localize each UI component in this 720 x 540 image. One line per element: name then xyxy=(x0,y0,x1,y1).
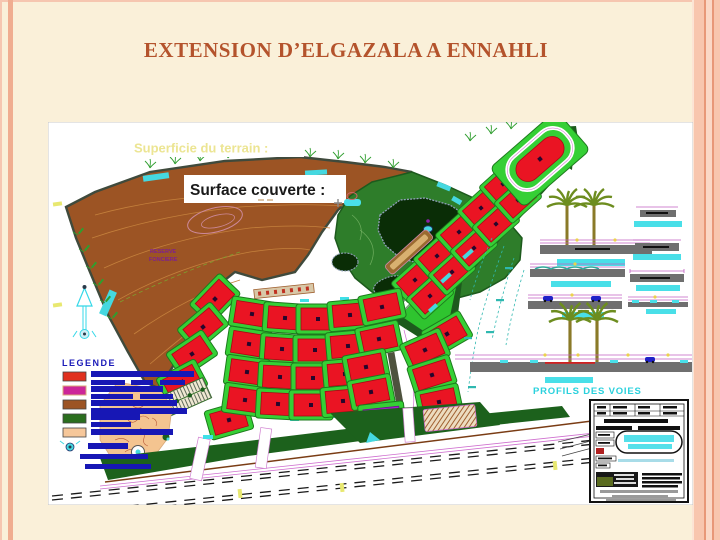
legend-swatch-tan xyxy=(63,428,86,437)
reserve-label-line2: FONCIERE xyxy=(149,257,178,263)
slide: { "slide": { "title": "EXTENSION D’ELGAZ… xyxy=(0,0,720,540)
slide-border-left-outer xyxy=(0,0,2,540)
profils-label: PROFILS DES VOIES xyxy=(533,386,642,397)
slide-border-right-band xyxy=(692,0,720,540)
site-plan-map: RESERVE FONCIERE xyxy=(48,122,693,505)
title-block xyxy=(590,400,688,502)
legend-swatch-red xyxy=(63,372,86,381)
legend-swatch-green xyxy=(63,414,86,423)
legend-swatch-magenta xyxy=(63,386,86,395)
surface-label: Surface couverte : xyxy=(190,182,325,199)
slide-border-left-stripe xyxy=(8,0,13,540)
legend-swatch-brown xyxy=(63,400,86,409)
superficie-label: Superficie du terrain : xyxy=(134,141,268,156)
legend-title: LEGENDE xyxy=(62,358,116,368)
slide-border-top xyxy=(0,0,720,2)
site-plan-image: RESERVE FONCIERE xyxy=(48,122,693,505)
slide-title: EXTENSION D’ELGAZALA A ENNAHLI xyxy=(0,38,692,63)
reserve-label-line1: RESERVE xyxy=(150,249,177,255)
